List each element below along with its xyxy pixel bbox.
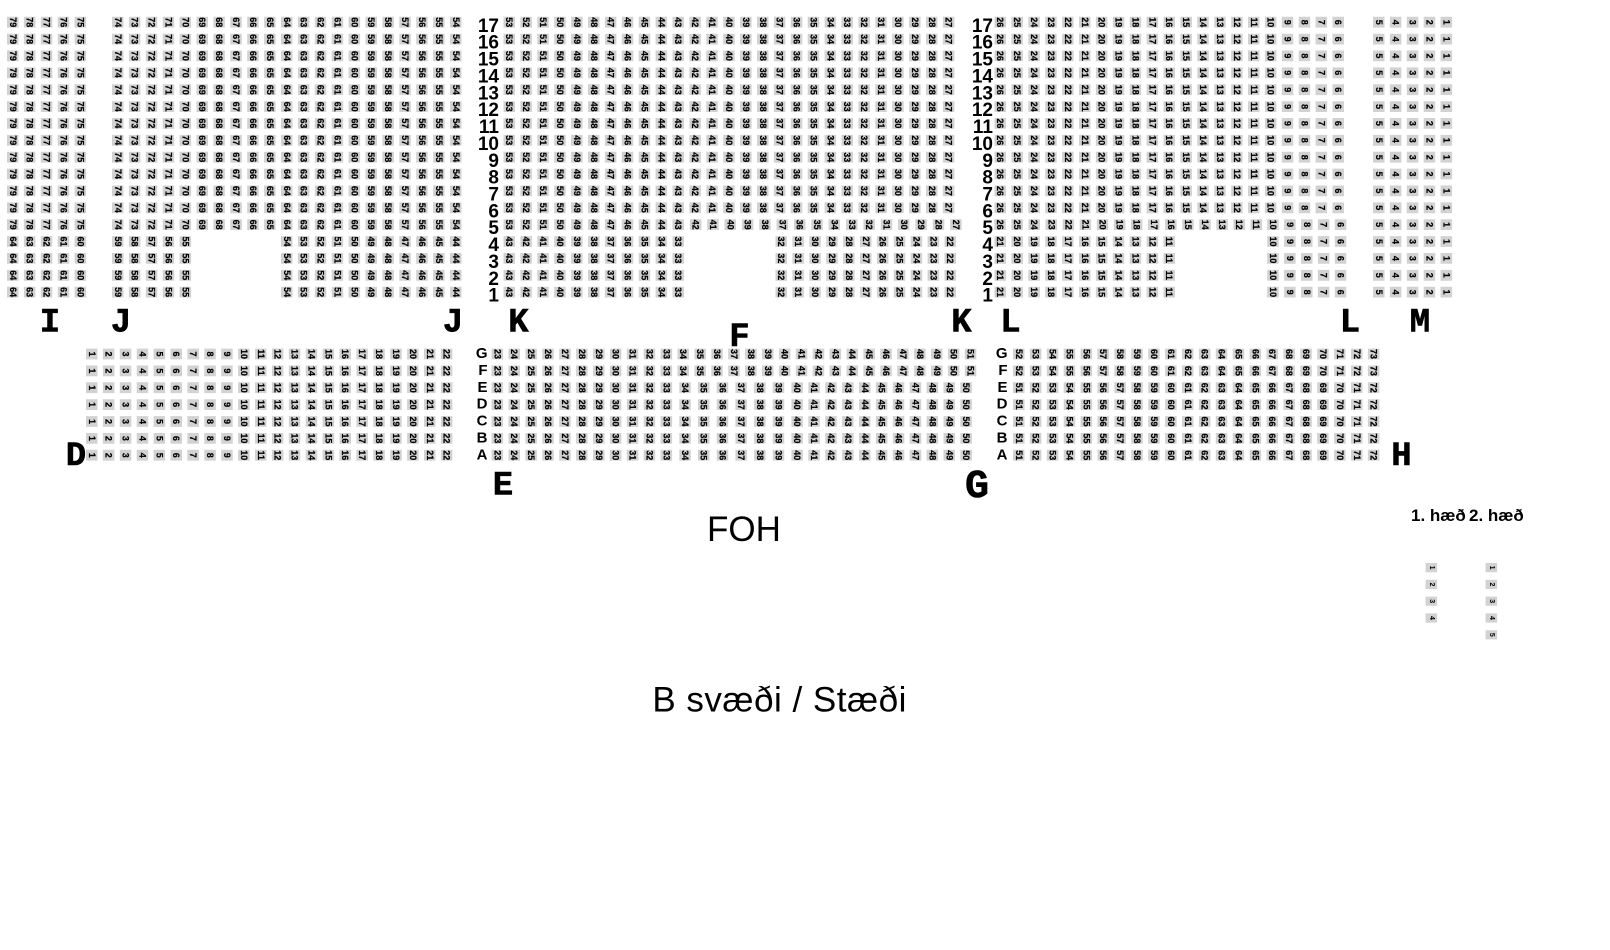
svg-text:12: 12 [273,433,283,443]
svg-text:3: 3 [1408,53,1418,58]
svg-text:48: 48 [589,186,599,196]
svg-text:17: 17 [1147,152,1157,162]
svg-text:29: 29 [910,102,920,112]
svg-text:64: 64 [1234,433,1244,443]
svg-text:33: 33 [673,236,683,246]
svg-text:65: 65 [265,169,275,179]
svg-text:28: 28 [927,17,937,27]
svg-text:46: 46 [881,366,891,376]
svg-text:46: 46 [623,118,633,128]
svg-text:65: 65 [1250,450,1260,460]
svg-text:66: 66 [1267,416,1277,426]
svg-text:14: 14 [1114,253,1124,263]
svg-text:1. hæð: 1. hæð [1411,506,1466,525]
svg-text:61: 61 [58,270,68,280]
svg-text:16: 16 [1080,253,1090,263]
svg-text:2: 2 [1428,582,1435,586]
svg-text:40: 40 [724,169,734,179]
svg-text:49: 49 [572,169,582,179]
svg-text:67: 67 [231,118,241,128]
svg-text:26: 26 [995,186,1005,196]
svg-text:24: 24 [912,236,922,246]
svg-text:70: 70 [1335,400,1345,410]
svg-text:46: 46 [623,85,633,95]
svg-text:37: 37 [775,186,785,196]
svg-text:63: 63 [299,17,309,27]
svg-text:76: 76 [58,186,68,196]
svg-text:49: 49 [572,17,582,27]
svg-text:47: 47 [911,450,921,460]
svg-text:74: 74 [113,203,123,213]
svg-text:48: 48 [589,51,599,61]
svg-text:23: 23 [492,416,502,426]
svg-text:29: 29 [910,186,920,196]
svg-text:32: 32 [859,203,869,213]
svg-text:56: 56 [417,152,427,162]
svg-text:36: 36 [792,34,802,44]
svg-text:18: 18 [374,400,384,410]
svg-text:60: 60 [349,220,359,230]
svg-text:13: 13 [1215,135,1225,145]
svg-text:19: 19 [1114,186,1124,196]
svg-text:7: 7 [188,453,198,458]
svg-text:39: 39 [741,203,751,213]
svg-text:76: 76 [58,169,68,179]
svg-text:FOH: FOH [707,510,781,549]
svg-text:23: 23 [1046,203,1056,213]
svg-text:37: 37 [775,203,785,213]
svg-text:57: 57 [147,253,157,263]
svg-text:22: 22 [1063,51,1073,61]
svg-text:9: 9 [1283,205,1293,210]
svg-text:64: 64 [282,169,292,179]
svg-text:24: 24 [1029,68,1039,78]
svg-text:40: 40 [724,34,734,44]
svg-text:49: 49 [932,349,942,359]
svg-text:55: 55 [434,51,444,61]
svg-text:22: 22 [1063,220,1073,230]
svg-text:68: 68 [214,51,224,61]
svg-text:2: 2 [1425,273,1435,278]
svg-text:73: 73 [130,68,140,78]
svg-text:C: C [997,413,1008,430]
svg-text:36: 36 [717,383,727,393]
svg-text:A: A [997,446,1008,463]
svg-text:3: 3 [121,368,131,373]
svg-text:66: 66 [248,85,258,95]
svg-text:3: 3 [1408,155,1418,160]
svg-text:11: 11 [1164,287,1174,297]
svg-text:12: 12 [273,400,283,410]
svg-text:48: 48 [589,102,599,112]
svg-text:49: 49 [572,118,582,128]
svg-text:67: 67 [231,152,241,162]
svg-text:65: 65 [265,118,275,128]
svg-text:24: 24 [912,253,922,263]
svg-text:55: 55 [1065,349,1075,359]
svg-text:24: 24 [1029,135,1039,145]
svg-text:50: 50 [555,135,565,145]
svg-text:1: 1 [1441,290,1451,295]
svg-text:29: 29 [594,383,604,393]
svg-text:46: 46 [623,186,633,196]
svg-text:7: 7 [1316,188,1326,193]
svg-text:19: 19 [1029,236,1039,246]
svg-text:54: 54 [451,102,461,112]
svg-text:4: 4 [1488,616,1495,620]
svg-text:8: 8 [205,419,215,424]
svg-text:65: 65 [265,68,275,78]
svg-text:56: 56 [163,236,173,246]
svg-text:69: 69 [197,220,207,230]
svg-text:62: 62 [316,203,326,213]
svg-text:43: 43 [504,287,514,297]
svg-text:14: 14 [1198,102,1208,112]
svg-text:70: 70 [180,51,190,61]
svg-text:36: 36 [717,433,727,443]
svg-text:13: 13 [1215,152,1225,162]
svg-text:45: 45 [877,433,887,443]
svg-text:44: 44 [656,68,666,78]
svg-text:36: 36 [792,51,802,61]
svg-text:71: 71 [163,203,173,213]
svg-text:66: 66 [1250,366,1260,376]
svg-text:56: 56 [417,51,427,61]
svg-text:24: 24 [1029,34,1039,44]
svg-text:43: 43 [673,135,683,145]
svg-text:60: 60 [349,186,359,196]
svg-text:7: 7 [1316,87,1326,92]
svg-text:73: 73 [130,118,140,128]
svg-text:35: 35 [699,400,709,410]
svg-text:47: 47 [911,383,921,393]
svg-text:12: 12 [1232,85,1242,95]
svg-text:32: 32 [645,450,655,460]
svg-text:1: 1 [87,402,97,407]
svg-text:57: 57 [400,135,410,145]
svg-text:58: 58 [383,34,393,44]
svg-text:17: 17 [357,450,367,460]
svg-text:5: 5 [154,436,164,441]
svg-text:5: 5 [1374,70,1384,75]
svg-text:53: 53 [504,85,514,95]
svg-text:23: 23 [492,366,502,376]
svg-text:72: 72 [147,135,157,145]
svg-text:18: 18 [1046,236,1056,246]
svg-text:60: 60 [75,270,85,280]
svg-text:60: 60 [1166,450,1176,460]
svg-text:39: 39 [743,220,753,230]
svg-text:6: 6 [1333,188,1343,193]
svg-text:26: 26 [995,34,1005,44]
svg-text:65: 65 [265,85,275,95]
svg-text:36: 36 [792,102,802,112]
svg-text:39: 39 [741,135,751,145]
svg-text:71: 71 [163,118,173,128]
svg-text:54: 54 [1065,383,1075,393]
svg-text:52: 52 [521,34,531,44]
svg-text:78: 78 [25,169,35,179]
svg-text:73: 73 [130,34,140,44]
svg-text:13: 13 [1215,118,1225,128]
svg-text:15: 15 [1097,287,1107,297]
svg-text:48: 48 [915,366,925,376]
svg-text:67: 67 [231,34,241,44]
svg-text:74: 74 [113,17,123,27]
svg-text:37: 37 [606,287,616,297]
svg-text:7: 7 [1316,53,1326,58]
svg-text:9: 9 [222,453,232,458]
svg-text:42: 42 [826,400,836,410]
svg-text:58: 58 [383,169,393,179]
svg-text:47: 47 [606,68,616,78]
svg-text:10: 10 [1268,236,1278,246]
svg-text:62: 62 [1183,349,1193,359]
svg-text:70: 70 [1335,416,1345,426]
svg-text:33: 33 [842,186,852,196]
svg-text:34: 34 [825,135,835,145]
svg-text:53: 53 [504,203,514,213]
svg-text:48: 48 [589,169,599,179]
svg-text:51: 51 [538,169,548,179]
svg-text:54: 54 [451,220,461,230]
svg-text:57: 57 [1098,366,1108,376]
svg-text:34: 34 [656,270,666,280]
svg-text:61: 61 [332,118,342,128]
svg-text:12: 12 [1232,186,1242,196]
svg-text:64: 64 [8,270,18,280]
svg-text:29: 29 [910,118,920,128]
svg-text:47: 47 [606,17,616,27]
svg-text:36: 36 [792,85,802,95]
svg-text:8: 8 [1300,87,1310,92]
svg-text:43: 43 [673,68,683,78]
svg-text:54: 54 [451,135,461,145]
svg-text:51: 51 [332,253,342,263]
svg-text:4: 4 [137,436,147,441]
svg-text:37: 37 [775,152,785,162]
svg-text:17: 17 [357,383,367,393]
svg-text:20: 20 [1012,287,1022,297]
svg-text:46: 46 [623,102,633,112]
svg-text:18: 18 [1131,51,1141,61]
svg-text:65: 65 [265,17,275,27]
svg-text:12: 12 [1147,270,1157,280]
svg-text:16: 16 [340,450,350,460]
svg-text:21: 21 [995,287,1005,297]
svg-text:35: 35 [699,450,709,460]
svg-text:56: 56 [417,85,427,95]
svg-text:7: 7 [188,402,198,407]
svg-text:78: 78 [25,17,35,27]
svg-text:E: E [997,379,1007,396]
svg-text:8: 8 [1300,53,1310,58]
svg-text:66: 66 [248,220,258,230]
svg-text:55: 55 [1081,433,1091,443]
svg-text:64: 64 [282,51,292,61]
svg-text:69: 69 [197,169,207,179]
svg-text:59: 59 [366,102,376,112]
svg-text:53: 53 [504,118,514,128]
svg-text:22: 22 [1063,203,1073,213]
svg-text:73: 73 [130,169,140,179]
svg-text:33: 33 [842,51,852,61]
svg-text:29: 29 [594,416,604,426]
svg-text:6: 6 [1333,104,1343,109]
svg-text:3: 3 [1408,171,1418,176]
svg-text:12: 12 [273,383,283,393]
svg-text:41: 41 [707,135,717,145]
svg-text:27: 27 [560,383,570,393]
svg-text:56: 56 [417,118,427,128]
svg-text:11: 11 [256,417,266,427]
svg-text:46: 46 [417,236,427,246]
svg-text:J: J [443,305,463,343]
svg-text:5: 5 [154,402,164,407]
svg-text:41: 41 [809,450,819,460]
svg-text:16: 16 [1166,220,1176,230]
svg-text:9: 9 [1283,171,1293,176]
svg-text:56: 56 [1098,383,1108,393]
svg-text:19: 19 [1114,34,1124,44]
svg-text:62: 62 [1200,433,1210,443]
svg-text:75: 75 [75,220,85,230]
svg-text:74: 74 [113,34,123,44]
svg-text:61: 61 [1166,349,1176,359]
svg-text:5: 5 [1374,205,1384,210]
svg-text:35: 35 [809,51,819,61]
svg-text:16: 16 [1164,135,1174,145]
svg-text:49: 49 [944,433,954,443]
svg-text:56: 56 [1081,349,1091,359]
svg-text:36: 36 [795,220,805,230]
svg-text:23: 23 [1046,85,1056,95]
svg-text:49: 49 [366,270,376,280]
svg-text:52: 52 [521,85,531,95]
svg-text:9: 9 [1283,121,1293,126]
svg-text:53: 53 [299,270,309,280]
svg-text:54: 54 [451,186,461,196]
svg-text:21: 21 [1080,203,1090,213]
svg-text:43: 43 [673,17,683,27]
svg-text:12: 12 [273,450,283,460]
svg-text:64: 64 [282,118,292,128]
svg-text:38: 38 [758,135,768,145]
svg-text:34: 34 [825,186,835,196]
svg-text:72: 72 [147,186,157,196]
svg-text:4: 4 [1391,239,1401,244]
svg-text:26: 26 [995,51,1005,61]
svg-text:76: 76 [58,34,68,44]
svg-text:26: 26 [543,433,553,443]
svg-text:71: 71 [1335,349,1345,359]
svg-text:C: C [477,413,488,430]
svg-text:45: 45 [640,169,650,179]
svg-text:42: 42 [521,270,531,280]
svg-text:36: 36 [792,152,802,162]
svg-text:24: 24 [1029,51,1039,61]
svg-text:3: 3 [1408,70,1418,75]
svg-text:19: 19 [1114,203,1124,213]
svg-text:57: 57 [400,169,410,179]
svg-text:76: 76 [58,102,68,112]
svg-text:68: 68 [214,186,224,196]
svg-text:46: 46 [623,169,633,179]
svg-text:46: 46 [623,34,633,44]
svg-text:19: 19 [1114,152,1124,162]
svg-text:14: 14 [306,366,316,376]
svg-text:17: 17 [1147,203,1157,213]
svg-text:45: 45 [640,102,650,112]
svg-text:16: 16 [1080,287,1090,297]
svg-text:37: 37 [777,220,787,230]
svg-text:29: 29 [910,135,920,145]
svg-text:70: 70 [180,169,190,179]
svg-text:47: 47 [898,366,908,376]
svg-text:46: 46 [623,152,633,162]
svg-text:44: 44 [656,118,666,128]
svg-text:4: 4 [137,351,147,356]
svg-text:56: 56 [163,253,173,263]
svg-text:49: 49 [366,253,376,263]
svg-text:13: 13 [1215,203,1225,213]
svg-text:20: 20 [1012,253,1022,263]
svg-text:27: 27 [944,34,954,44]
svg-text:74: 74 [113,220,123,230]
svg-text:59: 59 [366,152,376,162]
svg-text:31: 31 [876,118,886,128]
svg-text:6: 6 [1336,290,1346,295]
svg-text:65: 65 [265,186,275,196]
svg-text:35: 35 [809,34,819,44]
svg-text:14: 14 [1114,236,1124,246]
svg-text:34: 34 [825,17,835,27]
svg-text:52: 52 [316,253,326,263]
svg-text:19: 19 [1114,17,1124,27]
svg-text:1: 1 [1441,87,1451,92]
svg-text:30: 30 [893,34,903,44]
svg-text:H: H [1391,438,1411,476]
svg-text:36: 36 [623,270,633,280]
svg-text:22: 22 [1063,34,1073,44]
svg-text:71: 71 [1352,383,1362,393]
svg-text:22: 22 [1063,186,1073,196]
svg-text:42: 42 [690,102,700,112]
svg-text:13: 13 [1215,85,1225,95]
svg-text:28: 28 [934,220,944,230]
svg-text:9: 9 [1285,290,1295,295]
svg-text:43: 43 [673,102,683,112]
svg-text:50: 50 [961,383,971,393]
svg-text:29: 29 [910,68,920,78]
svg-text:30: 30 [611,400,621,410]
svg-text:25: 25 [1012,17,1022,27]
svg-text:61: 61 [332,220,342,230]
svg-text:42: 42 [690,186,700,196]
svg-text:30: 30 [893,135,903,145]
svg-text:9: 9 [222,368,232,373]
svg-text:17: 17 [1147,135,1157,145]
svg-text:41: 41 [797,366,807,376]
svg-text:35: 35 [809,203,819,213]
svg-text:30: 30 [611,416,621,426]
svg-text:56: 56 [417,68,427,78]
svg-text:67: 67 [231,68,241,78]
svg-text:L: L [1340,305,1360,343]
svg-text:63: 63 [1217,400,1227,410]
svg-text:66: 66 [248,186,258,196]
svg-text:12: 12 [1232,169,1242,179]
